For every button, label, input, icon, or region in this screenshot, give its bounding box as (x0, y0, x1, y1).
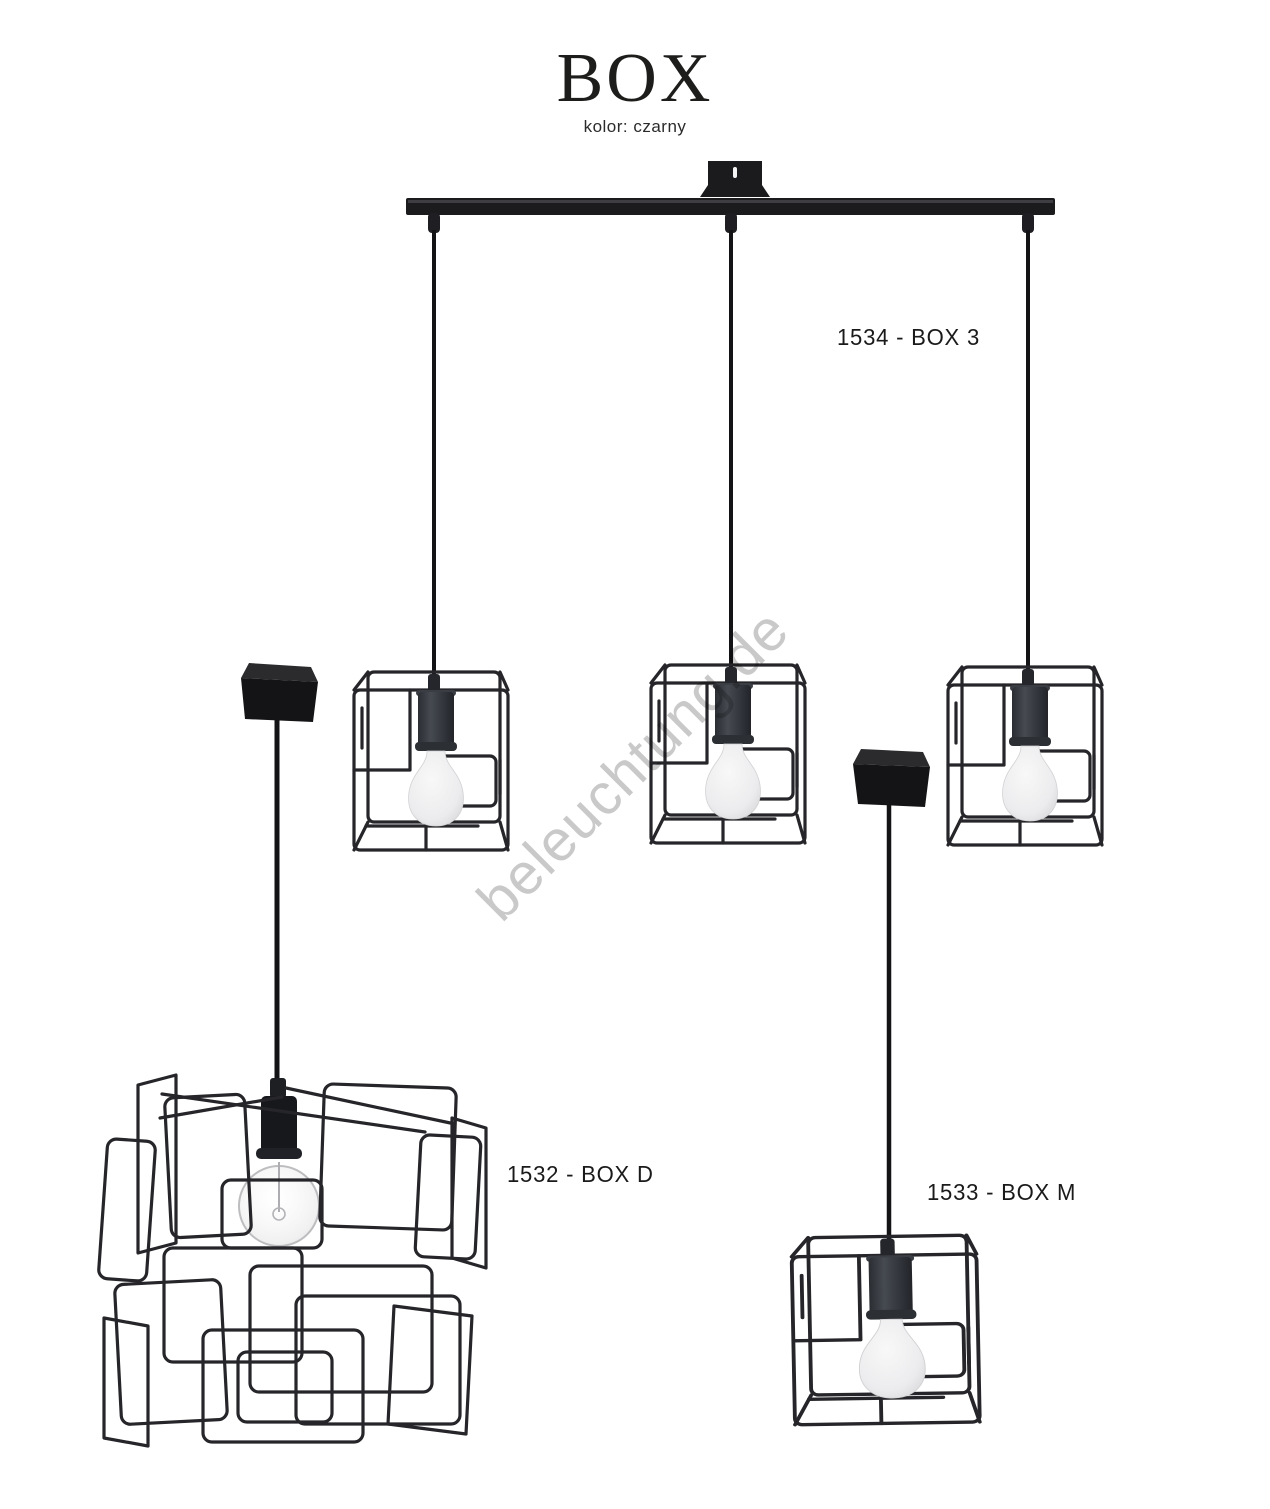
lamp-socket (261, 1096, 297, 1154)
product-label-box3: 1534 - BOX 3 (837, 324, 980, 351)
color-variant-label: kolor: czarny (0, 117, 1270, 137)
page-header: BOX kolor: czarny (0, 44, 1270, 137)
socket-cap (270, 1078, 286, 1098)
product-label-boxm: 1533 - BOX M (927, 1179, 1076, 1206)
bracket-foot (700, 182, 710, 197)
canopy-top (853, 749, 930, 767)
fixture-box3 (354, 161, 1102, 850)
canopy (853, 764, 930, 807)
cage-lamp-1 (354, 672, 508, 850)
fixture-boxm (791, 749, 979, 1425)
canopy (241, 678, 318, 722)
cage-lamp-m (791, 1235, 979, 1425)
catalog-page: BOX kolor: czarny (0, 0, 1270, 1509)
bracket-slot (733, 167, 737, 178)
cage-lamp-3 (948, 667, 1102, 845)
bar-highlight (408, 200, 1053, 203)
mounting-bracket (708, 161, 762, 197)
collection-title: BOX (0, 44, 1270, 114)
socket-flange (256, 1148, 302, 1159)
product-label-boxd: 1532 - BOX D (507, 1161, 654, 1188)
bracket-foot (760, 182, 770, 197)
